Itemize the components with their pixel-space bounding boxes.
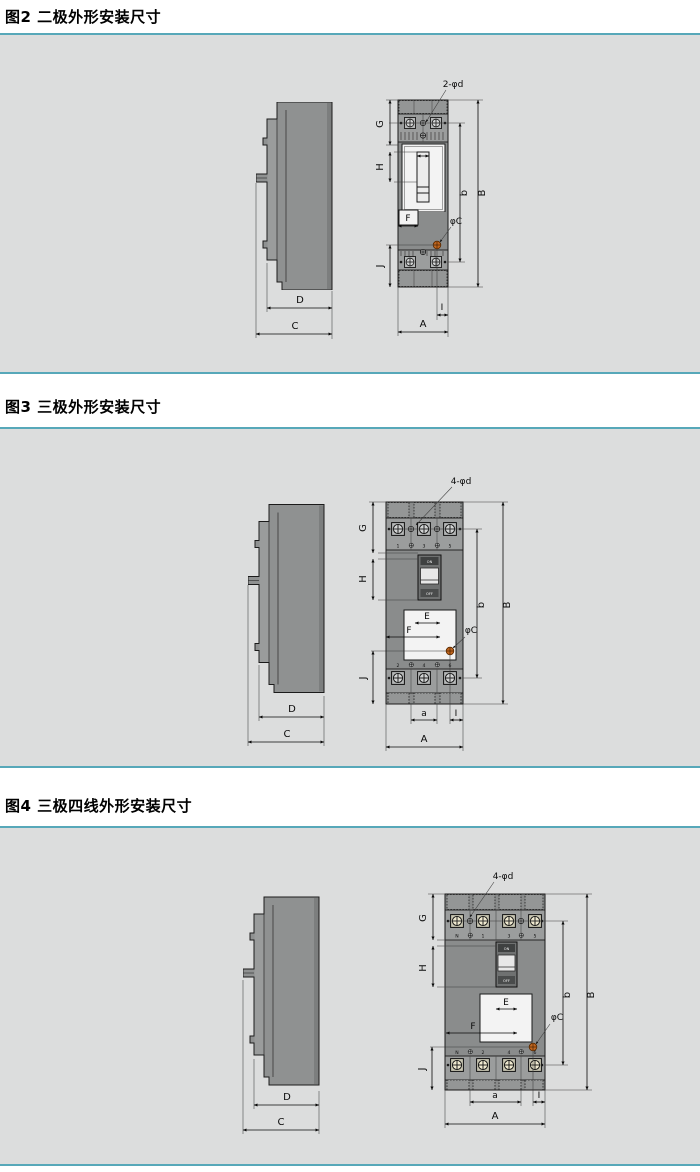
dim-label-a: a (421, 709, 427, 719)
dim-label-C: C (284, 729, 291, 740)
terminal-screw (405, 257, 416, 268)
dim-label-B: B (477, 189, 488, 196)
terminal-number: 3 (423, 544, 426, 550)
figure3-panel: D C 1 3 (0, 427, 700, 768)
mounting-hole-mark (519, 933, 523, 937)
terminal-screw (529, 1059, 542, 1072)
mounting-hole-mark (468, 1050, 472, 1054)
mounting-hole-mark (420, 249, 425, 254)
dim-label-G: G (358, 524, 369, 532)
side-view: D C (256, 102, 332, 339)
mounting-hole-mark (519, 1050, 523, 1054)
toggle-switch: ON OFF (496, 942, 517, 987)
figure2-drawing: D C (0, 35, 700, 372)
figure2-panel: D C (0, 33, 700, 374)
terminal-screw (431, 257, 442, 268)
mounting-hole-mark (435, 543, 439, 547)
mounting-hole-mark (409, 663, 413, 667)
dim-label-B: B (502, 601, 513, 608)
terminal-number: 5 (534, 934, 537, 940)
terminal-number: N (455, 934, 458, 940)
dim-label-I: I (455, 709, 458, 719)
datasheet-page: 图2 二极外形安装尺寸 D C (0, 0, 700, 1172)
dim-label-C: C (278, 1117, 285, 1128)
dim-label-J: J (375, 265, 386, 269)
dim-label-J: J (417, 1068, 428, 1072)
dim-label-F: F (470, 1022, 475, 1032)
figure4-title: 图4 三极四线外形安装尺寸 (5, 795, 192, 816)
holes-callout-label: 2-φd (443, 80, 464, 90)
terminal-number: 2 (482, 1050, 485, 1056)
dim-label-b: b (562, 992, 573, 998)
dim-label-A: A (492, 1111, 499, 1122)
holes-callout-label: 4-φd (451, 477, 472, 487)
mounting-hole-mark (420, 133, 425, 138)
terminal-number: 3 (508, 934, 511, 940)
terminal-screw (477, 1059, 490, 1072)
dim-label-I: I (538, 1091, 541, 1101)
terminal-number: 5 (449, 544, 452, 550)
toggle-switch (417, 152, 429, 202)
mounting-hole-mark (468, 933, 472, 937)
dim-label-G: G (375, 120, 386, 128)
dim-label-D: D (283, 1092, 291, 1103)
front-view: N 1 3 5 ON OFF E F (430, 894, 545, 1090)
dim-label-b: b (459, 190, 470, 196)
phi-c-label: φC (551, 1013, 563, 1023)
dim-label-B: B (586, 991, 597, 998)
dim-label-D: D (288, 704, 296, 715)
terminal-screw (451, 1059, 464, 1072)
terminal-number: N (455, 1050, 458, 1056)
figure4-drawing: D C N (0, 828, 700, 1164)
dim-label-A: A (421, 734, 428, 745)
terminal-screw (418, 672, 431, 685)
terminal-number: 2 (397, 663, 400, 669)
dim-label-J: J (358, 677, 369, 681)
figure3-drawing: D C 1 3 (0, 429, 700, 766)
terminal-screw (503, 1059, 516, 1072)
toggle-off-label: OFF (426, 592, 433, 596)
dim-label-I: I (441, 303, 444, 313)
dim-label-H: H (375, 163, 386, 171)
phi-c-label: φC (465, 626, 477, 636)
dim-label-G: G (418, 914, 429, 922)
figure3-title: 图3 三极外形安装尺寸 (5, 396, 161, 417)
mounting-hole-mark (435, 663, 439, 667)
dim-label-A: A (420, 319, 427, 330)
toggle-off-label: OFF (503, 979, 510, 983)
figure2-title: 图2 二极外形安装尺寸 (5, 6, 161, 27)
toggle-on-label: ON (504, 947, 510, 951)
terminal-number: 1 (482, 934, 485, 940)
figure4-panel: D C N (0, 826, 700, 1166)
front-view: F (398, 100, 448, 287)
front-view: 1 3 5 ON OFF E F (371, 502, 463, 704)
side-view: D C (243, 897, 319, 1134)
toggle-switch: ON OFF (418, 555, 441, 600)
side-view: D C (248, 505, 324, 747)
terminal-number: 4 (508, 1050, 511, 1056)
terminal-number: 1 (397, 544, 400, 550)
toggle-on-label: ON (427, 560, 433, 564)
dim-label-F: F (405, 214, 410, 224)
dim-label-b: b (476, 602, 487, 608)
dim-label-F: F (406, 626, 411, 636)
holes-callout-label: 4-φd (493, 872, 514, 882)
dim-label-C: C (292, 321, 299, 332)
dim-label-H: H (418, 964, 429, 972)
dim-label-E: E (424, 612, 430, 622)
dim-label-a: a (492, 1091, 498, 1101)
mounting-hole-mark (409, 543, 413, 547)
phi-c-hole-marker (446, 647, 454, 655)
phi-c-hole-marker (529, 1043, 537, 1051)
terminal-screw (392, 672, 405, 685)
dim-label-E: E (503, 998, 509, 1008)
dim-label-D: D (296, 295, 304, 306)
dim-label-H: H (358, 575, 369, 583)
terminal-number: 4 (423, 663, 426, 669)
